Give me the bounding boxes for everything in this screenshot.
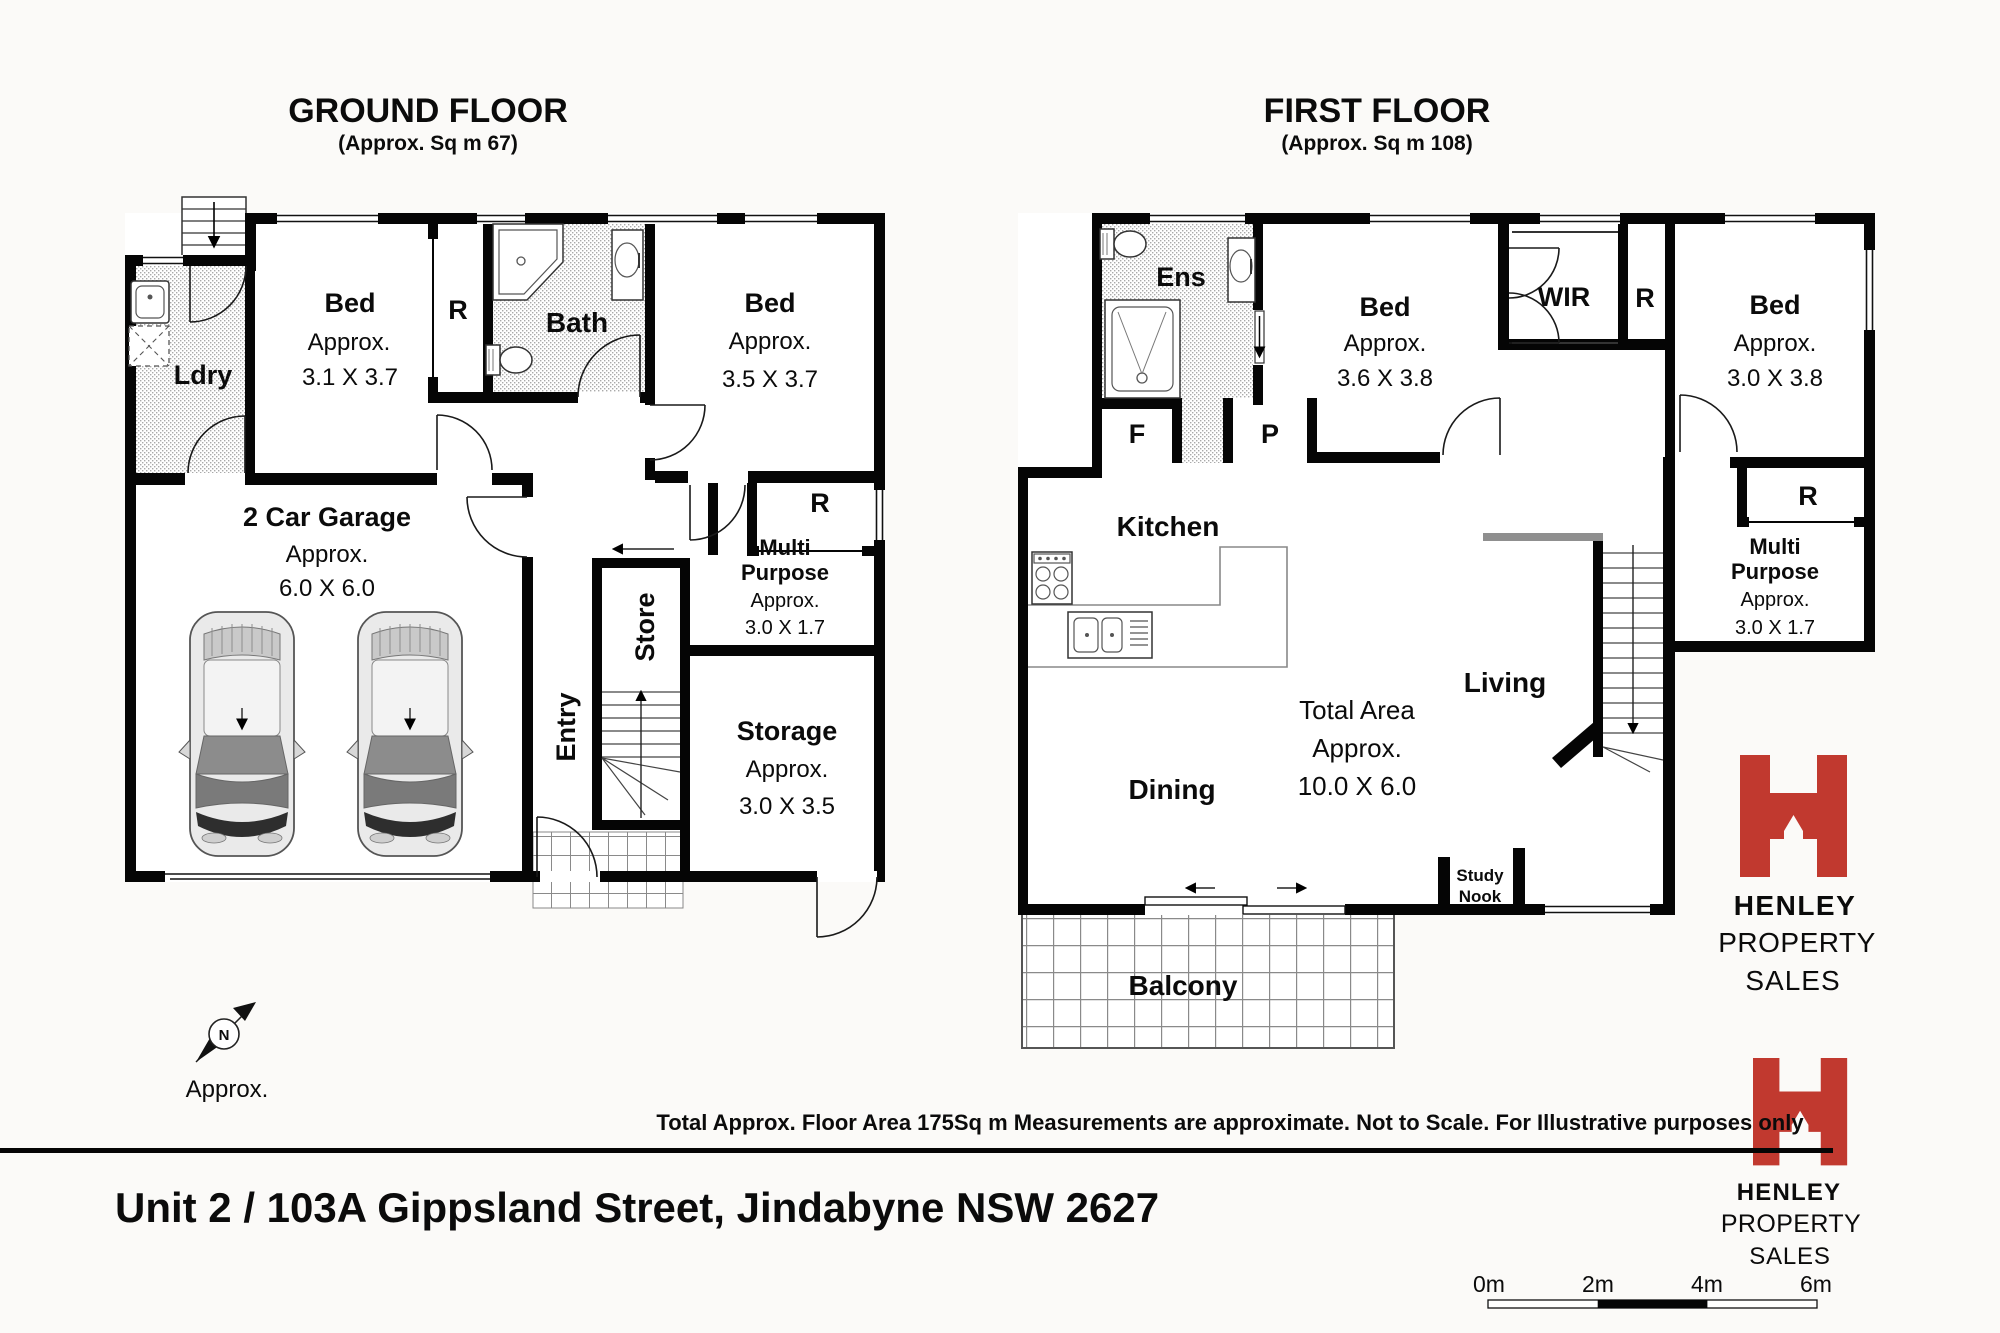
robe2-label: R (810, 488, 830, 518)
garage-dims: 6.0 X 6.0 (279, 575, 375, 602)
multi-purpose-f-label1: Multi (1749, 534, 1800, 559)
entry-label: Entry (551, 692, 581, 761)
floorplan-page: GROUND FLOOR (Approx. Sq m 67) FIRST FLO… (0, 0, 2000, 1333)
bed2-label: Bed (744, 288, 795, 318)
storage-dims: 3.0 X 3.5 (739, 793, 835, 820)
storage-approx: Approx. (746, 756, 829, 783)
scale-label-2m: 2m (1582, 1271, 1614, 1297)
car-icon (179, 612, 305, 856)
ground-floor-subtitle: (Approx. Sq m 67) (338, 132, 518, 155)
balcony-label: Balcony (1129, 970, 1238, 1001)
stair-half-wall (1483, 533, 1603, 541)
brand-logo-footer: HENLEY PROPERTY SALES (1721, 1058, 1861, 1270)
robe3-label: R (1635, 283, 1655, 313)
ensuite-vanity-icon (1228, 238, 1255, 302)
ground-floor-plan: Ldry Bed Approx. 3.1 X 3.7 R Bath Bed Ap… (125, 197, 885, 937)
ground-floor-title: GROUND FLOOR (288, 92, 568, 130)
ensuite-label: Ens (1156, 262, 1206, 292)
robe4-label: R (1798, 481, 1818, 511)
robe1-label: R (448, 295, 468, 325)
multi-purpose-f-approx: Approx. (1741, 589, 1810, 611)
ensuite-toilet-icon (1100, 229, 1146, 259)
ensuite-shower-icon (1105, 300, 1180, 398)
bed1-approx: Approx. (308, 329, 391, 356)
compass-icon: N (196, 1002, 256, 1062)
car-icon (347, 612, 473, 856)
first-floor-title: FIRST FLOOR (1264, 92, 1491, 130)
pantry-label: P (1261, 419, 1279, 449)
washing-machine-icon (129, 326, 169, 366)
multi-purpose-f-label2: Purpose (1731, 559, 1819, 584)
laundry-label: Ldry (174, 360, 233, 390)
bath-vanity-icon (612, 230, 643, 300)
bed3-dims: 3.6 X 3.8 (1337, 365, 1433, 392)
bed3-label: Bed (1359, 292, 1410, 322)
bed4-label: Bed (1749, 290, 1800, 320)
footer-divider (0, 1148, 1833, 1153)
total-area-line2: Approx. (1312, 733, 1402, 763)
compass-label: Approx. (186, 1076, 269, 1103)
bed3-approx: Approx. (1344, 330, 1427, 357)
fridge-label: F (1129, 419, 1146, 449)
bed4-dims: 3.0 X 3.8 (1727, 365, 1823, 392)
brand-line1: HENLEY (1734, 890, 1857, 921)
bath-label: Bath (546, 307, 608, 338)
external-stairs (182, 197, 246, 259)
store-label: Store (630, 592, 660, 661)
storage-label: Storage (737, 716, 838, 746)
bed1-dims: 3.1 X 3.7 (302, 364, 398, 391)
scale-bar: 0m 2m 4m 6m (1473, 1271, 1832, 1308)
multi-purpose-dims: 3.0 X 1.7 (745, 617, 825, 639)
scale-label-6m: 6m (1800, 1271, 1832, 1297)
stove-icon (1032, 552, 1072, 604)
bed4-approx: Approx. (1734, 330, 1817, 357)
kitchen-label: Kitchen (1117, 511, 1220, 542)
scale-label-0m: 0m (1473, 1271, 1505, 1297)
first-floor-plan: Ens F P Bed Approx. 3.6 X 3.8 WIR R Bed … (1018, 213, 1876, 1048)
multi-purpose-label1: Multi (759, 535, 810, 560)
garage-approx: Approx. (286, 541, 369, 568)
total-area-line1: Total Area (1299, 695, 1415, 725)
scale-label-4m: 4m (1691, 1271, 1723, 1297)
brand-footer-line1: HENLEY (1737, 1179, 1842, 1206)
disclaimer-text: Total Approx. Floor Area 175Sq m Measure… (656, 1110, 1804, 1135)
laundry-sink-icon (131, 281, 169, 323)
multi-purpose-approx: Approx. (751, 590, 820, 612)
bed2-approx: Approx. (729, 328, 812, 355)
total-area-line3: 10.0 X 6.0 (1298, 771, 1417, 801)
bath-toilet-icon (486, 345, 532, 375)
brand-footer-line2: PROPERTY (1721, 1210, 1861, 1238)
brand-footer-line3: SALES (1749, 1243, 1830, 1270)
multi-purpose-label2: Purpose (741, 560, 829, 585)
dining-label: Dining (1128, 774, 1215, 805)
study-nook-line1: Study (1456, 866, 1504, 885)
porch-tiles (533, 832, 683, 908)
multi-purpose-f-dims: 3.0 X 1.7 (1735, 617, 1815, 639)
ensuite-nook-floor (1182, 398, 1223, 463)
bed1-label: Bed (324, 288, 375, 318)
wir-label: WIR (1538, 282, 1590, 312)
bed2-dims: 3.5 X 3.7 (722, 366, 818, 393)
svg-text:N: N (219, 1027, 230, 1044)
garage-label: 2 Car Garage (243, 502, 411, 532)
kitchen-sink-icon (1068, 612, 1152, 658)
living-label: Living (1464, 667, 1546, 698)
brand-line3: SALES (1745, 965, 1840, 996)
study-nook-line2: Nook (1459, 887, 1502, 906)
first-floor-subtitle: (Approx. Sq m 108) (1281, 132, 1472, 155)
ensuite-slider (1255, 311, 1264, 363)
brand-line2: PROPERTY (1718, 927, 1876, 958)
address-text: Unit 2 / 103A Gippsland Street, Jindabyn… (115, 1184, 1159, 1231)
floorplan-canvas: GROUND FLOOR (Approx. Sq m 67) FIRST FLO… (0, 0, 2000, 1333)
